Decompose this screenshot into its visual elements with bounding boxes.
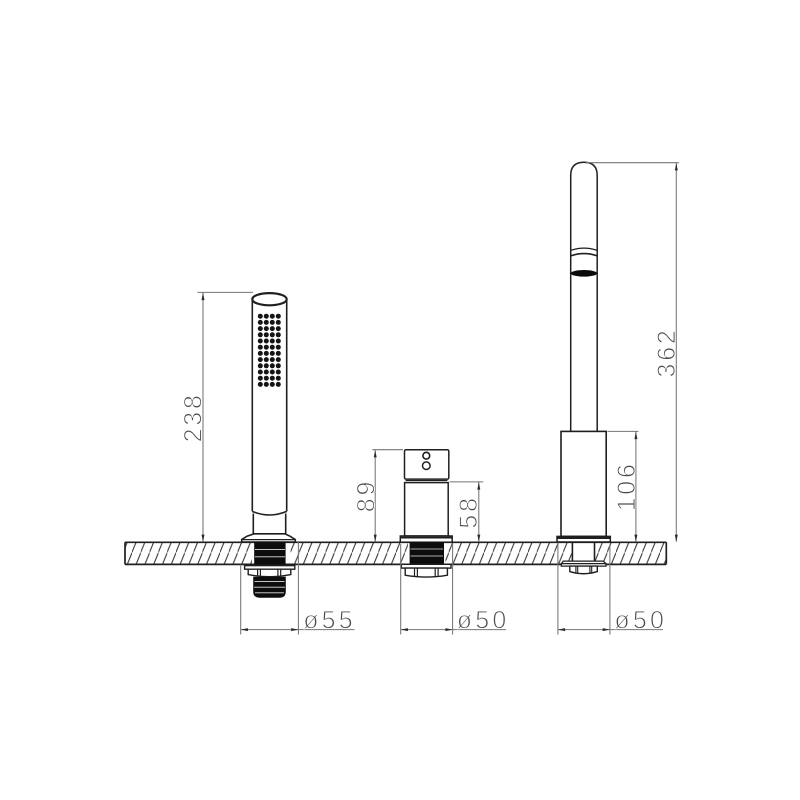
- svg-text:89: 89: [353, 479, 381, 512]
- svg-text:ø55: ø55: [303, 606, 356, 634]
- svg-text:ø50: ø50: [457, 606, 510, 634]
- svg-text:238: 238: [180, 392, 208, 442]
- svg-text:106: 106: [613, 461, 641, 511]
- svg-text:362: 362: [653, 327, 681, 377]
- svg-text:ø50: ø50: [614, 606, 667, 634]
- svg-text:58: 58: [455, 495, 483, 528]
